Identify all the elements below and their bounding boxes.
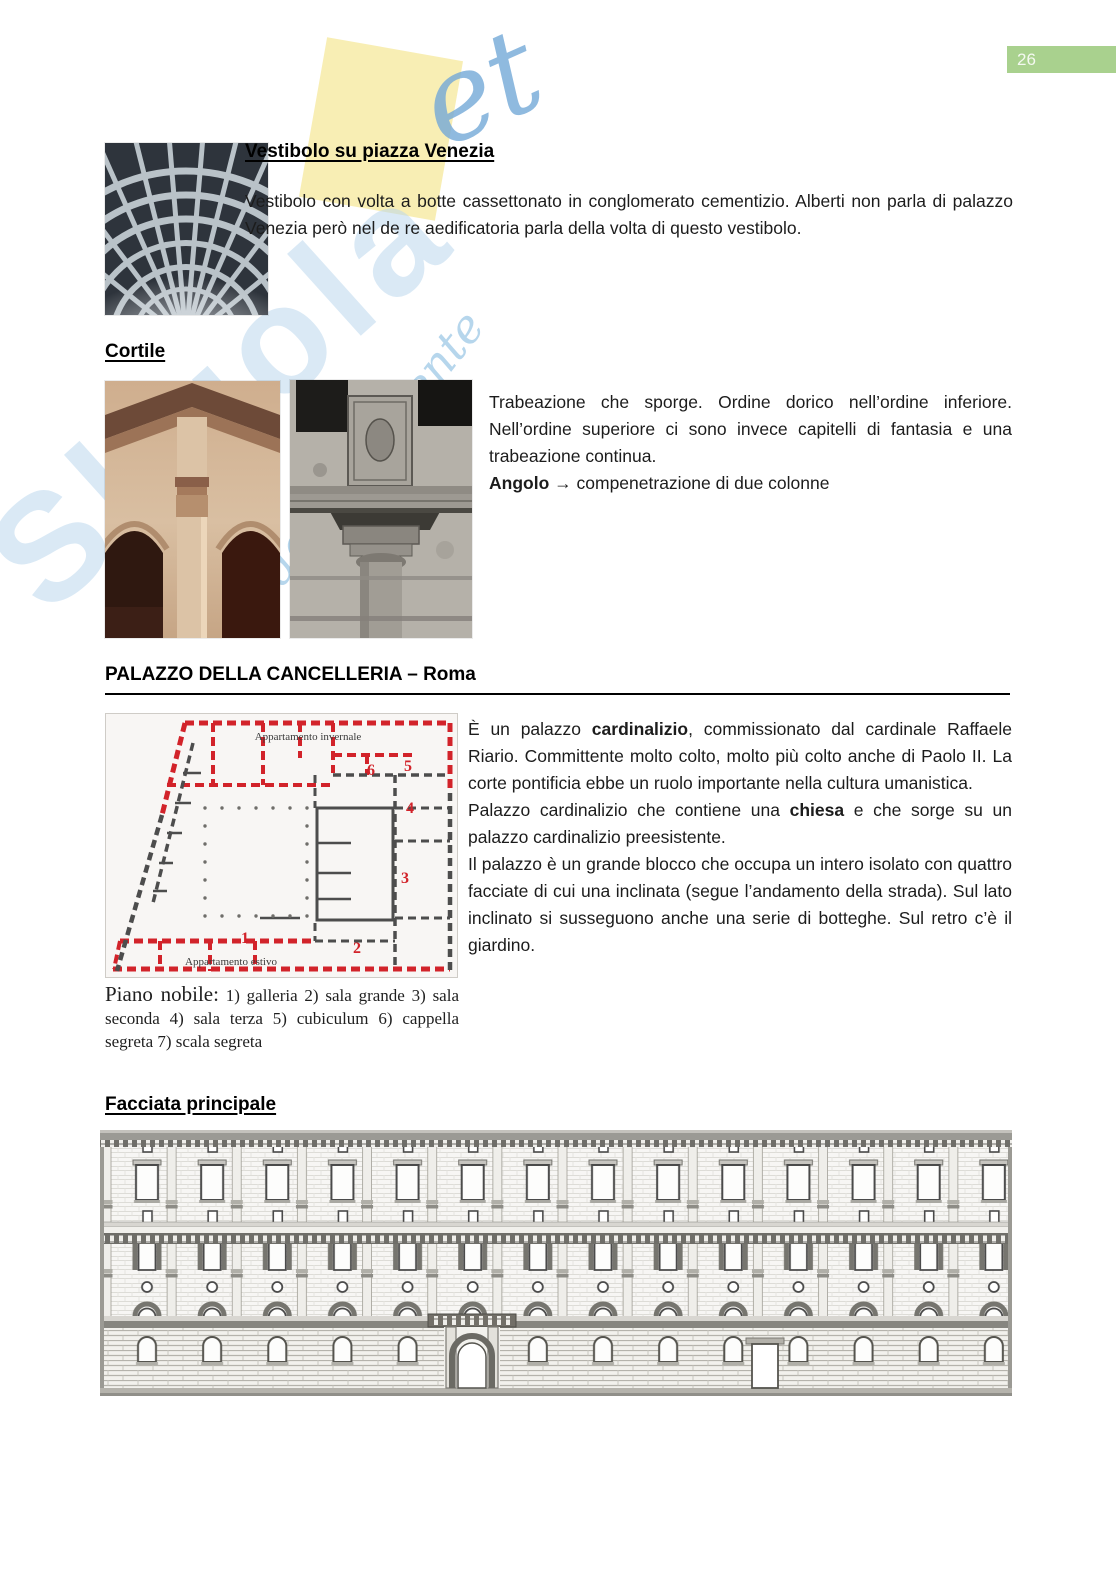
cancelleria-p1-bold: cardinalizio bbox=[592, 719, 688, 739]
cortile-paragraph: Trabeazione che sporge. Ordine dorico ne… bbox=[489, 389, 1012, 497]
plan-number-4: 4 bbox=[406, 800, 414, 817]
cancelleria-heading: PALAZZO DELLA CANCELLERIA – Roma bbox=[105, 664, 1010, 695]
page-number-badge: 26 bbox=[1007, 46, 1116, 73]
facade-drawing bbox=[100, 1130, 1012, 1396]
cancelleria-paragraphs: È un palazzo cardinalizio, commissionato… bbox=[468, 716, 1012, 959]
plan-caption-lead: Piano nobile: bbox=[105, 982, 219, 1006]
plan-label-appartamento-estivo: Appartamento estivo bbox=[185, 956, 277, 968]
vault-drawing bbox=[105, 143, 268, 315]
cancelleria-p1-pre: È un palazzo bbox=[468, 719, 592, 739]
plan-number-6: 6 bbox=[367, 762, 375, 779]
document-page: Skuola et dello studente 26 bbox=[0, 0, 1116, 1579]
cortile-angolo-term: Angolo bbox=[489, 473, 549, 493]
vestibolo-body-text: Vestibolo con volta a botte cassettonato… bbox=[245, 191, 1013, 238]
vestibolo-vault-photo bbox=[105, 143, 268, 315]
floor-plan-drawing: Appartamento invernale Appartamento esti… bbox=[105, 713, 458, 978]
cancelleria-p2-pre: Palazzo cardinalizio che contiene una bbox=[468, 800, 790, 820]
plan-number-3: 3 bbox=[401, 870, 409, 887]
vestibolo-heading: Vestibolo su piazza Venezia bbox=[245, 141, 494, 163]
arrow-right-glyph: → bbox=[554, 473, 572, 493]
facciata-heading: Facciata principale bbox=[105, 1094, 276, 1116]
plan-label-appartamento-invernale: Appartamento invernale bbox=[255, 731, 362, 743]
facciata-elevation-image bbox=[100, 1130, 1012, 1396]
plan-number-5: 5 bbox=[404, 758, 412, 775]
cancelleria-p3: Il palazzo è un grande blocco che occupa… bbox=[468, 854, 1012, 955]
cortile-corner-drawing bbox=[105, 381, 280, 638]
plan-number-1: 1 bbox=[241, 930, 249, 947]
cancelleria-p2-bold: chiesa bbox=[790, 800, 844, 820]
cortile-angolo-text: compenetrazione di due colonne bbox=[577, 473, 830, 493]
page-number: 26 bbox=[1017, 50, 1036, 69]
cortile-heading: Cortile bbox=[105, 341, 165, 363]
vestibolo-paragraph: Vestibolo con volta a botte cassettonato… bbox=[245, 188, 1013, 242]
cortile-body-text: Trabeazione che sporge. Ordine dorico ne… bbox=[489, 392, 1012, 466]
cortile-corner-photo bbox=[105, 381, 280, 638]
plan-caption: Piano nobile: 1) galleria 2) sala grande… bbox=[105, 983, 459, 1053]
cortile-wall-drawing bbox=[290, 380, 472, 638]
cortile-wall-photo bbox=[290, 380, 472, 638]
plan-number-2: 2 bbox=[353, 940, 361, 957]
cancelleria-floor-plan: Appartamento invernale Appartamento esti… bbox=[105, 713, 458, 978]
